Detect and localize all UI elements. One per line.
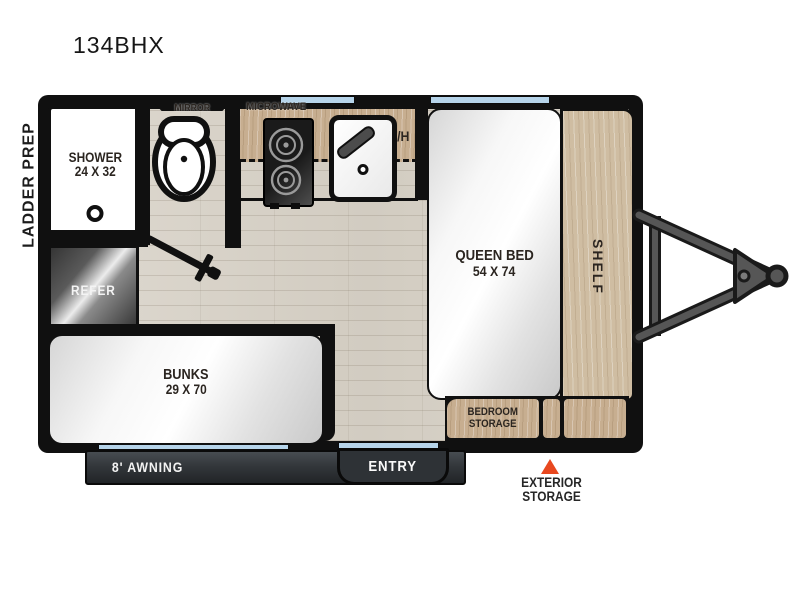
stove-knob: [291, 203, 300, 209]
shower-drain-icon: [87, 205, 104, 222]
shower-dims-text: 24 X 32: [75, 165, 116, 179]
sink-icon: [329, 115, 397, 202]
awning-label: 8' AWNING: [112, 460, 183, 475]
cooktop-icon: [263, 118, 314, 207]
floorplan-page: { "title": "134BHX", "exterior": { "ladd…: [0, 0, 800, 600]
entry-label: ENTRY: [369, 459, 418, 475]
wall: [225, 95, 241, 248]
bedroom-storage-label: BEDROOM STORAGE: [447, 399, 539, 438]
microwave-label-text: MICROWAVE: [246, 102, 306, 114]
shower-label-text: SHOWER: [68, 151, 121, 165]
bedroom-storage-row: BEDROOM STORAGE: [445, 396, 629, 441]
shelf: SHELF: [560, 108, 635, 402]
entry-step: ENTRY: [337, 448, 449, 485]
window: [430, 96, 550, 104]
microwave-label: MICROWAVE: [242, 102, 310, 114]
shelf-label: SHELF: [590, 215, 605, 295]
sink-drain-icon: [358, 164, 369, 175]
queen-bed-label-text: QUEEN BED: [455, 248, 533, 264]
exterior-storage-label: EXTERIOR STORAGE: [502, 476, 602, 504]
bunks-label-text: BUNKS: [163, 368, 208, 383]
bedroom-storage-box: BEDROOM STORAGE: [447, 399, 539, 438]
ladder-prep-label: LADDER PREP: [22, 122, 39, 248]
mirror-label-text: MIRROR: [174, 104, 210, 115]
bedroom-storage-label-text: BEDROOM STORAGE: [468, 407, 519, 430]
exterior-storage-label-text: EXTERIOR STORAGE: [522, 476, 583, 504]
model-number-title: 134BHX: [73, 33, 165, 57]
floorplan-body: SHOWER 24 X 32 MIRROR MICROWAVE O/H: [38, 95, 643, 453]
bunk-beds: BUNKS 29 X 70: [48, 334, 324, 445]
mirror-label: MIRROR: [150, 104, 234, 115]
shower-stall: SHOWER 24 X 32: [48, 106, 142, 238]
stove-knob: [270, 203, 279, 209]
queen-bed-label: QUEEN BED 54 X 74: [429, 248, 560, 280]
bedroom-storage-box: [543, 399, 560, 438]
trailer-hitch-icon: [629, 190, 794, 360]
shower-label: SHOWER 24 X 32: [51, 151, 139, 179]
faucet-icon: [335, 124, 378, 161]
toilet-icon: [148, 115, 220, 203]
bunks-label: BUNKS 29 X 70: [50, 368, 322, 398]
exterior-storage-marker-icon: [541, 459, 559, 474]
queen-bed: QUEEN BED 54 X 74: [427, 108, 562, 400]
queen-bed-dims-text: 54 X 74: [473, 264, 515, 279]
refrigerator-label: REFER: [71, 284, 116, 298]
bunks-dims-text: 29 X 70: [166, 383, 207, 397]
bedroom-storage-box: [564, 399, 626, 438]
